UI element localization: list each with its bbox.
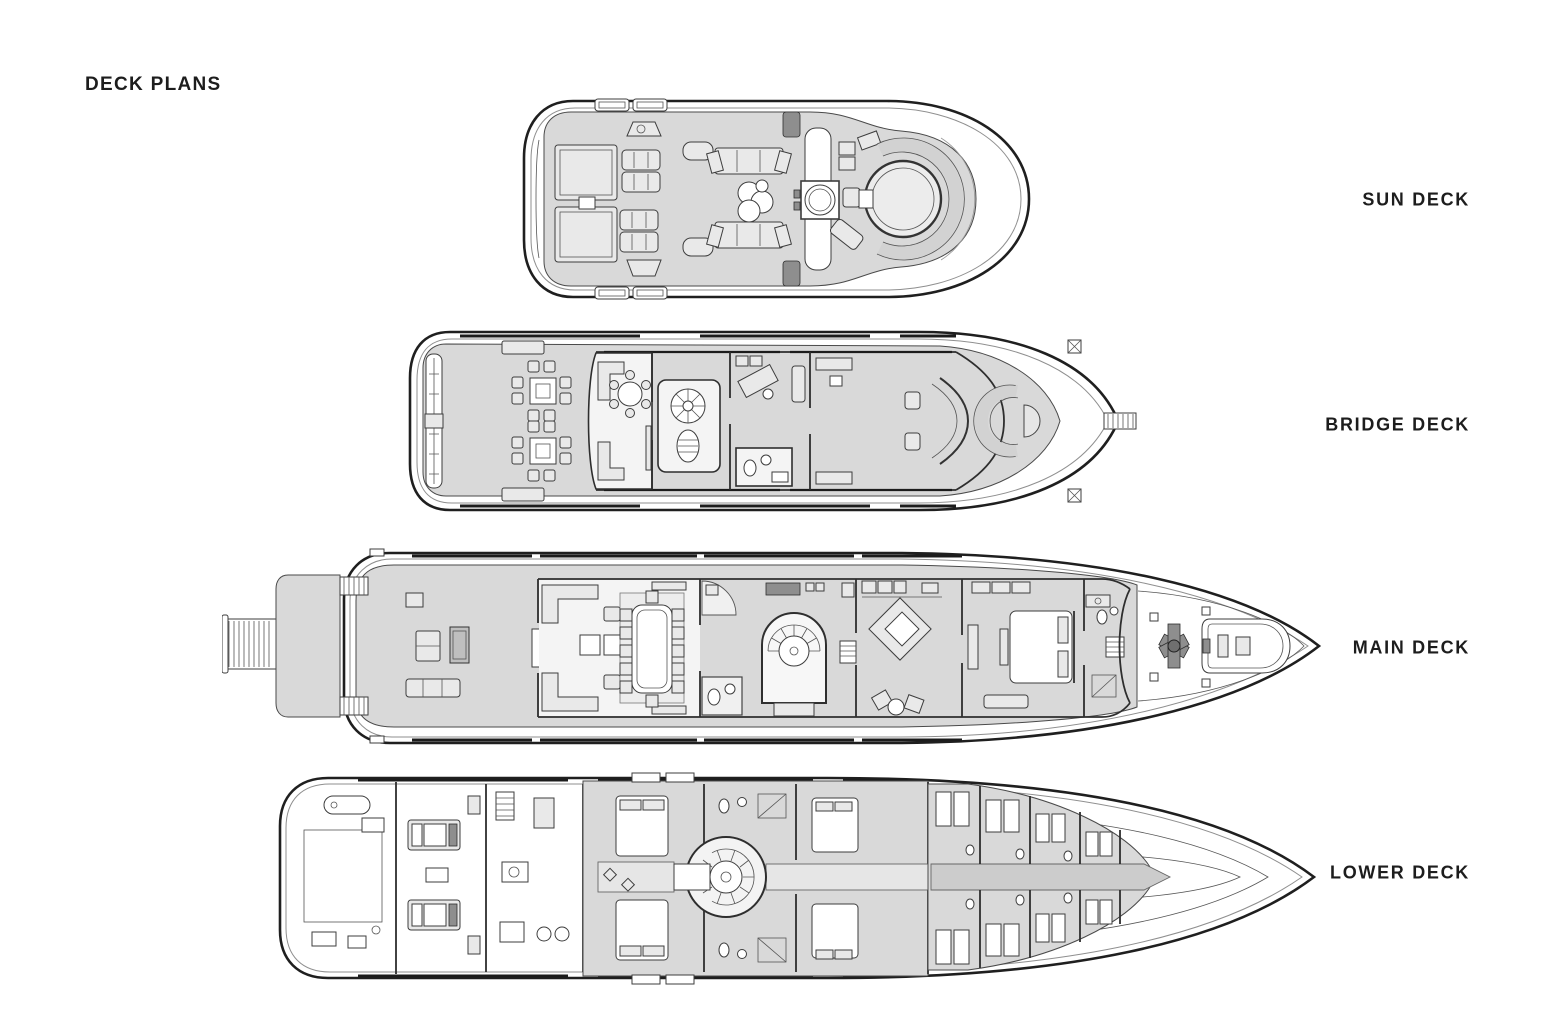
- spiral-staircase: [779, 636, 809, 666]
- swim-platform: [276, 575, 340, 717]
- bridge-deck-plan: [400, 328, 1138, 514]
- arch-leg: [783, 261, 800, 286]
- helm-seat: [905, 433, 920, 450]
- deck-hatch: [666, 975, 694, 984]
- salon: [539, 580, 700, 716]
- passerelle: [222, 615, 276, 673]
- lounger: [502, 488, 544, 501]
- deck-hatch: [666, 773, 694, 782]
- day-head: [702, 677, 742, 715]
- boarding-ladder: [1104, 413, 1136, 429]
- skylounge-table: [618, 382, 642, 406]
- sun-deck-plan: [515, 98, 1035, 300]
- page-title: DECK PLANS: [85, 74, 222, 96]
- helm-seat: [905, 392, 920, 409]
- stair-lobby: [658, 380, 720, 472]
- spiral-staircase: [710, 861, 742, 893]
- cleat: [370, 549, 384, 556]
- deck-label-sun: SUN DECK: [1150, 190, 1470, 211]
- lounger: [502, 341, 544, 354]
- dining-table: [632, 605, 672, 693]
- corridor: [766, 864, 931, 890]
- deck-label-lower: LOWER DECK: [1150, 863, 1470, 884]
- stern-bench: [425, 354, 443, 488]
- deck-label-bridge: BRIDGE DECK: [1150, 415, 1470, 436]
- deck-hatch: [632, 773, 660, 782]
- deck-plans-page: DECK PLANS: [0, 0, 1550, 1028]
- deck-label-main: MAIN DECK: [1150, 638, 1470, 659]
- arch-leg: [783, 112, 800, 137]
- crew-corridor: [931, 864, 1170, 890]
- deck-hatch: [632, 975, 660, 984]
- cleat: [370, 736, 384, 743]
- skylounge: [589, 353, 653, 489]
